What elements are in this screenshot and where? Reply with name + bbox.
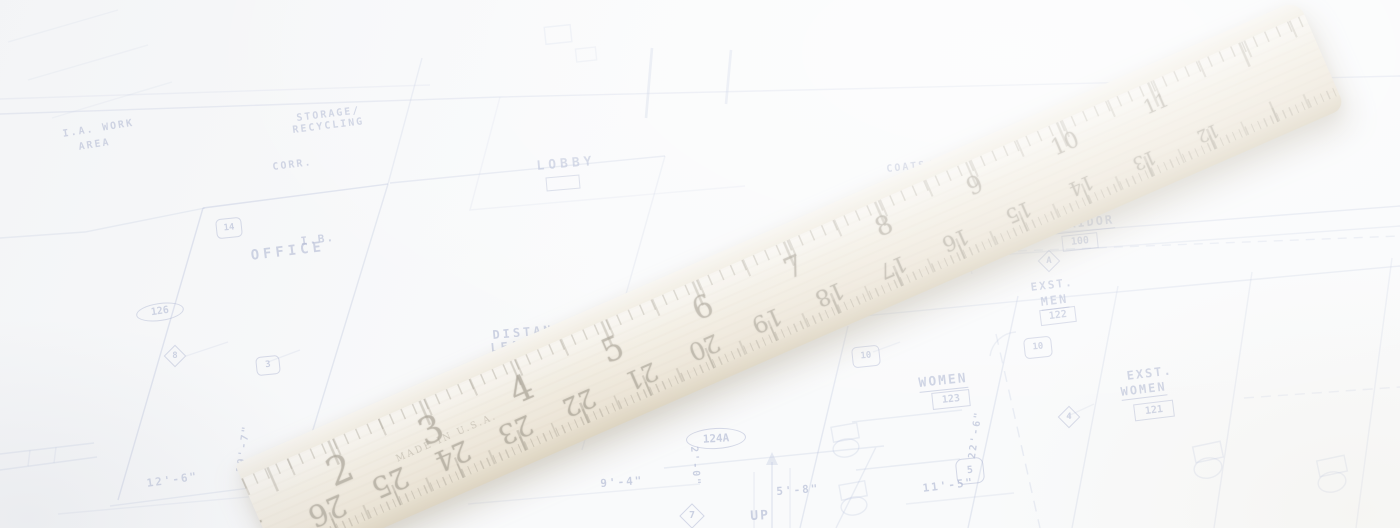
blueprint-label: 5'-8" <box>776 483 820 497</box>
blueprint-label: 9'-4" <box>600 475 644 489</box>
room-tag-number: 121 <box>1144 404 1163 416</box>
room-tag-number: 14 <box>223 223 235 233</box>
blueprint-label: 2'-0" <box>688 446 701 487</box>
room-tag-number: 10 <box>860 351 872 361</box>
room-tag-number: 124A <box>702 432 729 444</box>
room-tag: 7 <box>680 504 704 528</box>
room-tag <box>545 175 580 192</box>
room-tag: 3 <box>255 355 281 376</box>
blueprint-label: EXST. <box>1126 364 1173 382</box>
room-tag-number: 122 <box>1048 310 1067 322</box>
blueprint-label: OFFICE <box>250 240 326 263</box>
blueprint-label: UP <box>750 509 770 523</box>
room-tag: 121 <box>1133 400 1175 422</box>
room-tag: 123 <box>931 389 971 410</box>
room-tag-number: 8 <box>172 352 177 361</box>
blueprint-label: I.A. WORK <box>62 119 135 140</box>
room-tag: 14 <box>215 217 243 240</box>
room-tag-number: 123 <box>941 394 960 406</box>
room-tag-number: 3 <box>265 361 271 371</box>
room-tag: 8 <box>164 345 186 367</box>
room-tag-number: 100 <box>1070 236 1089 248</box>
room-tag: 126 <box>135 300 185 325</box>
room-tag-number: 7 <box>689 511 695 521</box>
room-tag-number: A <box>1046 257 1051 266</box>
blueprint-label: 22'-6" <box>968 410 985 459</box>
room-tag: 4 <box>1058 406 1080 428</box>
room-tag-number: 126 <box>150 306 169 318</box>
room-tag: 122 <box>1039 306 1077 326</box>
room-tag-number: 5 <box>966 466 973 477</box>
room-tag-number: 4 <box>1066 413 1071 422</box>
room-tag: 124A <box>685 426 746 450</box>
blueprint-label: 12'-6" <box>146 471 199 489</box>
room-tag: 5 <box>955 457 986 486</box>
room-tag: 100 <box>1061 232 1098 252</box>
room-tag: 10 <box>851 345 881 369</box>
blueprint-label: AREA <box>78 138 111 153</box>
blueprint-label: WOMEN <box>1120 380 1168 401</box>
room-tag: A <box>1038 250 1060 272</box>
blueprint-label: CORR. <box>272 158 313 173</box>
blueprint-label: LOBBY <box>536 155 596 173</box>
blueprint-hero: I.A. WORKAREASTORAGE/RECYCLINGCORR.LOBBY… <box>0 0 1400 528</box>
blueprint-label: EXST. <box>1030 277 1074 293</box>
room-tag-number: 10 <box>1032 342 1044 352</box>
room-tag: 10 <box>1023 336 1053 360</box>
